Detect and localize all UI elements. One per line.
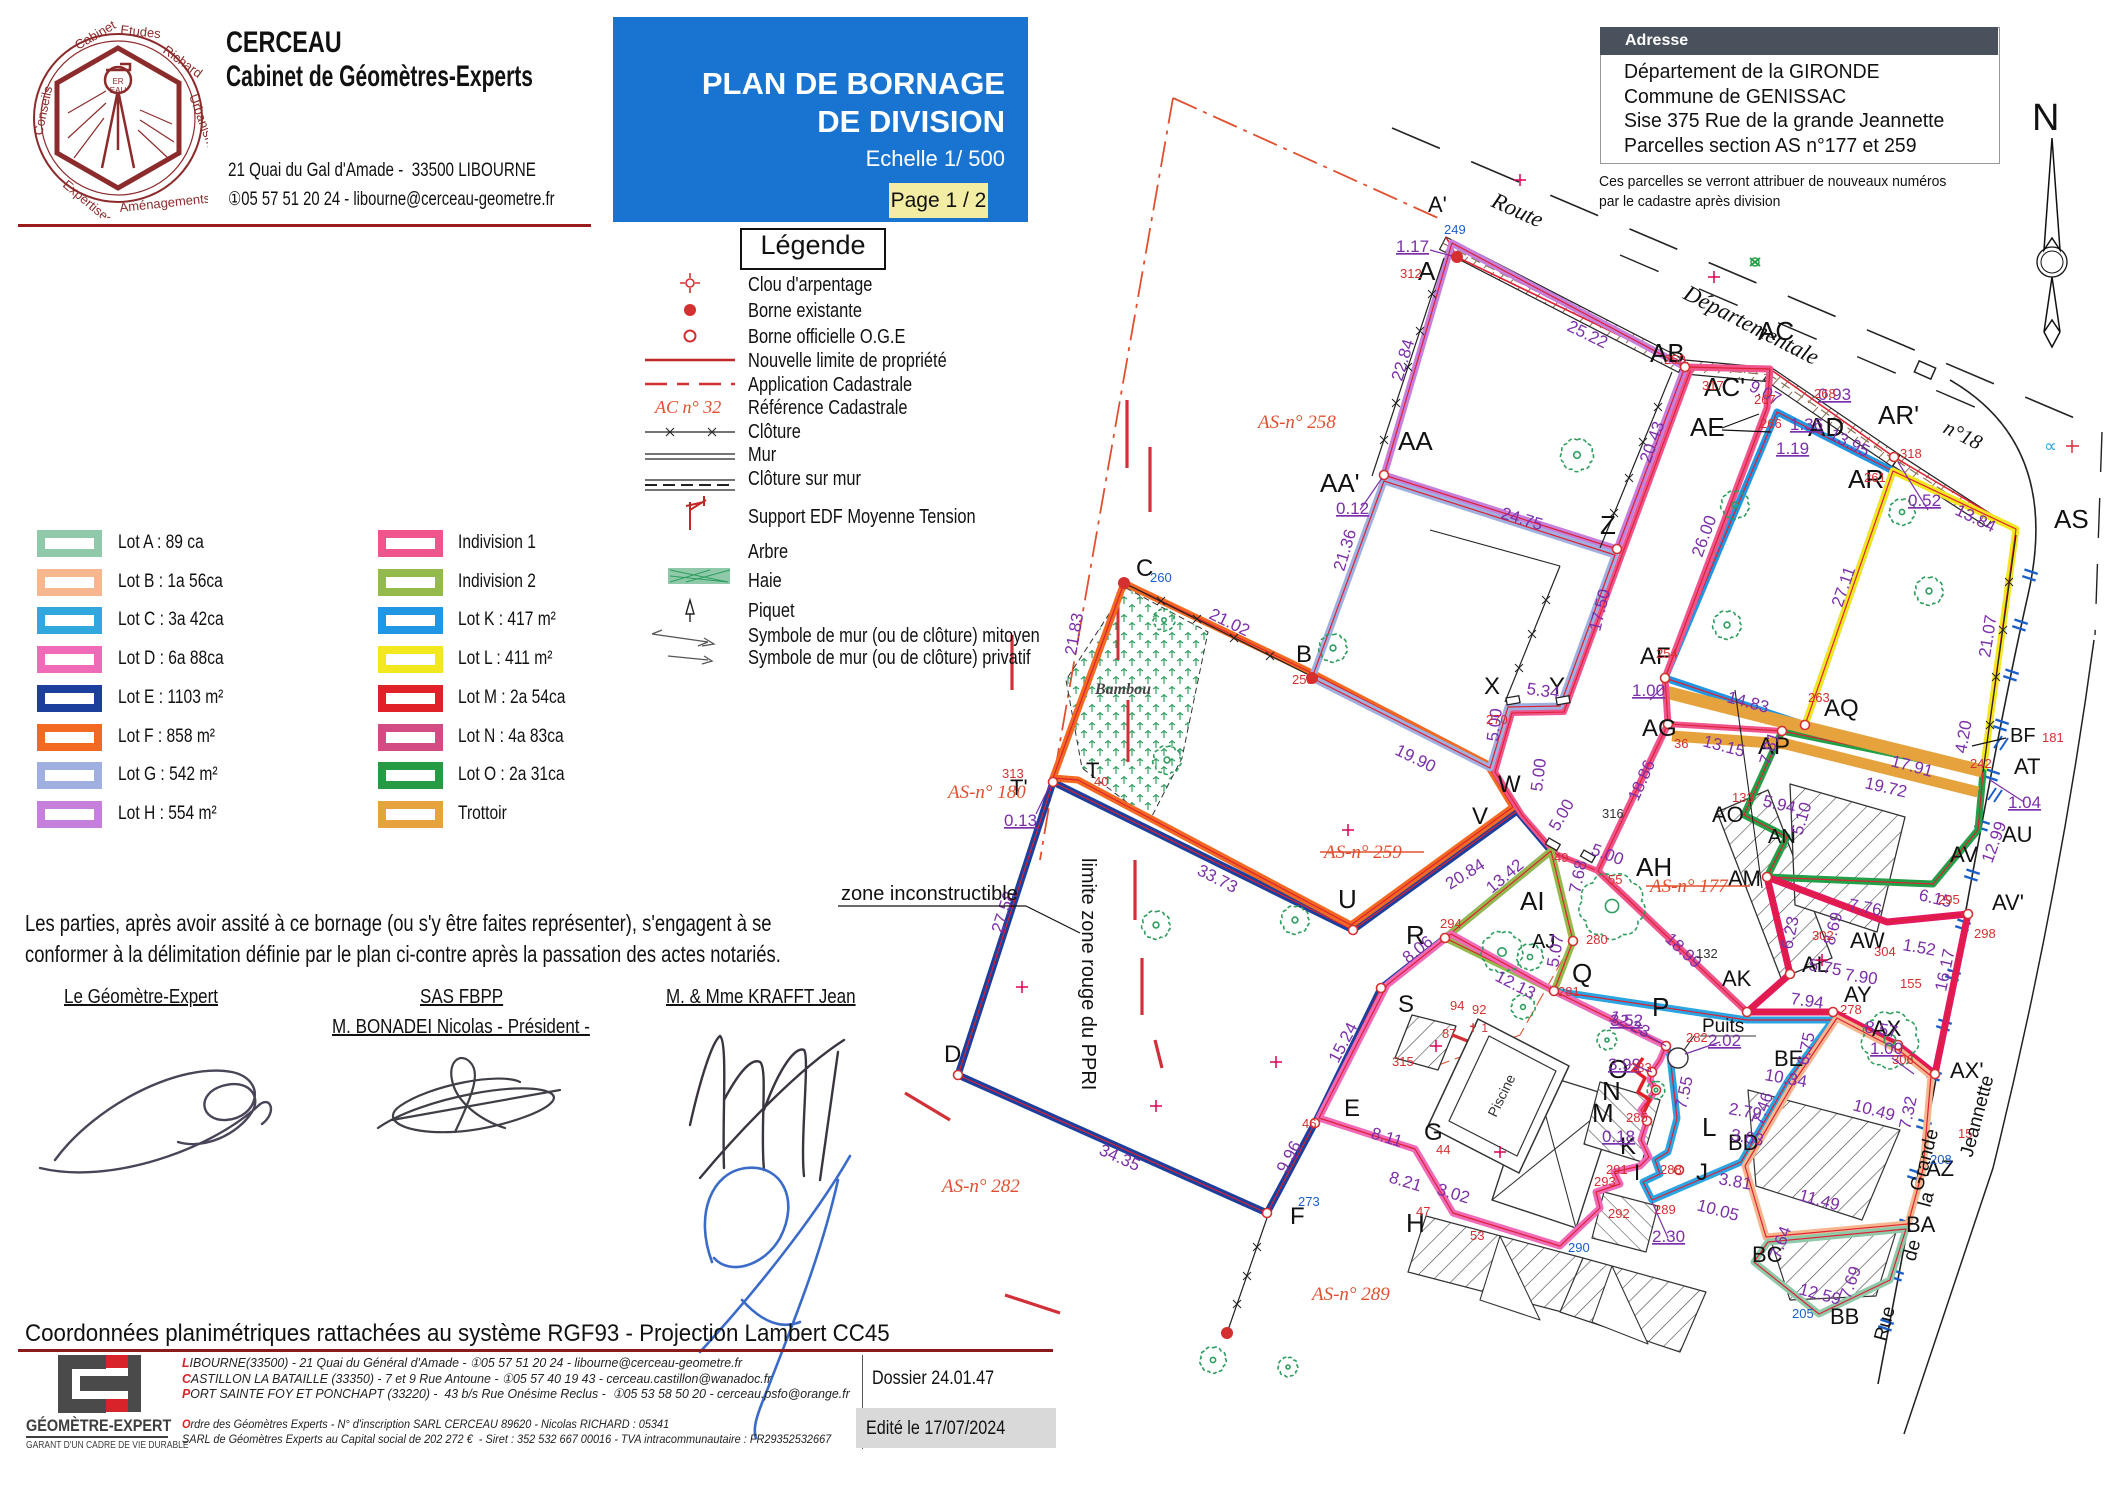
svg-text:312: 312 — [1400, 266, 1422, 281]
svg-text:5.00: 5.00 — [1589, 840, 1627, 869]
svg-text:1.04: 1.04 — [2008, 793, 2041, 812]
svg-text:294: 294 — [1440, 916, 1462, 931]
svg-text:3.52: 3.52 — [1610, 1011, 1643, 1030]
svg-text:261: 261 — [1864, 470, 1886, 485]
svg-text:94: 94 — [1450, 998, 1464, 1013]
svg-text:U: U — [1338, 884, 1357, 914]
svg-text:87: 87 — [1442, 1026, 1456, 1041]
svg-text:155: 155 — [1900, 976, 1922, 991]
svg-text:288: 288 — [1660, 1162, 1682, 1177]
svg-text:AS-n° 180: AS-n° 180 — [946, 782, 1026, 803]
svg-text:0.13: 0.13 — [1004, 811, 1037, 830]
svg-text:133: 133 — [1732, 790, 1754, 805]
svg-text:278: 278 — [1840, 1002, 1862, 1017]
svg-text:6.75: 6.75 — [1793, 1031, 1818, 1067]
svg-text:limite zone rouge du PPRI: limite zone rouge du PPRI — [1077, 858, 1099, 1090]
svg-text:298: 298 — [1974, 926, 1996, 941]
svg-text:181: 181 — [2042, 730, 2064, 745]
svg-text:250: 250 — [1664, 352, 1686, 367]
svg-text:55: 55 — [1608, 872, 1622, 887]
svg-text:316: 316 — [1602, 806, 1624, 821]
svg-text:✝ 1: ✝ 1 — [1468, 1021, 1488, 1035]
svg-text:W: W — [1498, 771, 1521, 798]
svg-text:n°18: n°18 — [1940, 415, 1987, 455]
svg-text:205: 205 — [1792, 1306, 1814, 1321]
svg-text:17.50: 17.50 — [1585, 587, 1614, 633]
svg-text:24.75: 24.75 — [1499, 504, 1545, 535]
svg-text:AG: AG — [1642, 715, 1677, 742]
svg-text:AS-n° 258: AS-n° 258 — [1256, 412, 1336, 433]
svg-text:2.02: 2.02 — [1708, 1031, 1741, 1050]
svg-text:AS: AS — [2054, 504, 2089, 534]
svg-text:46: 46 — [1302, 1116, 1316, 1131]
svg-text:AS-n° 289: AS-n° 289 — [1310, 1284, 1390, 1305]
svg-text:AE: AE — [1690, 412, 1725, 442]
svg-text:BF: BF — [2010, 725, 2036, 747]
svg-text:5.00: 5.00 — [1545, 796, 1578, 834]
svg-text:53: 53 — [1470, 1228, 1484, 1243]
svg-text:18.86: 18.86 — [1624, 757, 1659, 804]
svg-text:J: J — [1696, 1159, 1708, 1186]
svg-text:7.68: 7.68 — [1565, 859, 1590, 895]
svg-text:290: 290 — [1568, 1240, 1590, 1255]
svg-text:36: 36 — [1674, 736, 1688, 751]
svg-text:49: 49 — [1554, 850, 1568, 865]
svg-text:263: 263 — [1808, 690, 1830, 705]
svg-text:N: N — [2032, 97, 2059, 139]
svg-text:AK: AK — [1722, 966, 1752, 991]
svg-text:5.34: 5.34 — [1525, 679, 1560, 702]
svg-text:249: 249 — [1444, 222, 1466, 237]
svg-text:AA': AA' — [1320, 468, 1360, 498]
svg-text:0.52: 0.52 — [1908, 491, 1941, 510]
svg-text:268: 268 — [1814, 386, 1836, 401]
svg-text:267: 267 — [1754, 392, 1776, 407]
svg-text:P: P — [1652, 992, 1669, 1022]
svg-text:8.11: 8.11 — [1369, 1124, 1405, 1151]
svg-text:AR': AR' — [1878, 400, 1919, 430]
svg-text:BA: BA — [1906, 1212, 1936, 1237]
svg-text:AV': AV' — [1992, 890, 2024, 915]
svg-text:302: 302 — [1812, 928, 1834, 943]
svg-text:254: 254 — [1656, 646, 1678, 661]
svg-text:de: de — [1900, 1237, 1926, 1263]
svg-text:132: 132 — [1696, 946, 1718, 961]
svg-text:44: 44 — [1436, 1142, 1450, 1157]
svg-text:19.90: 19.90 — [1392, 741, 1439, 777]
svg-text:306: 306 — [1892, 1052, 1914, 1067]
svg-text:2.30: 2.30 — [1652, 1227, 1685, 1246]
svg-text:1.52: 1.52 — [1901, 935, 1937, 959]
svg-text:92: 92 — [1472, 1002, 1486, 1017]
svg-text:270: 270 — [1486, 712, 1508, 727]
svg-text:293: 293 — [1594, 1174, 1616, 1189]
svg-text:zone inconstructible: zone inconstructible — [841, 883, 1018, 905]
svg-text:280: 280 — [1586, 932, 1608, 947]
svg-text:Etudes: Etudes — [120, 22, 162, 41]
svg-text:AO: AO — [1712, 802, 1744, 827]
svg-text:AS-n° 282: AS-n° 282 — [940, 1176, 1020, 1197]
svg-text:47: 47 — [1416, 1204, 1430, 1219]
svg-text:253: 253 — [1292, 672, 1314, 687]
svg-text:Cabinet: Cabinet — [72, 18, 119, 53]
svg-text:ER: ER — [112, 77, 123, 86]
svg-text:8.21: 8.21 — [1387, 1168, 1424, 1196]
svg-text:Bambou: Bambou — [1094, 681, 1151, 698]
svg-text:L: L — [1702, 1112, 1716, 1142]
svg-text:AM: AM — [1728, 866, 1761, 891]
svg-text:EAU: EAU — [110, 86, 127, 95]
svg-text:I: I — [1634, 1160, 1640, 1185]
svg-text:21.83: 21.83 — [1061, 611, 1087, 656]
svg-text:AC n° 32: AC n° 32 — [654, 397, 721, 417]
svg-text:A': A' — [1428, 192, 1447, 217]
svg-text:315: 315 — [1392, 1054, 1414, 1069]
svg-text:3.02: 3.02 — [1435, 1180, 1472, 1208]
svg-text:1.36: 1.36 — [1790, 415, 1823, 434]
svg-text:∝: ∝ — [2044, 436, 2057, 456]
svg-text:285: 285 — [1626, 1110, 1648, 1125]
svg-text:313: 313 — [1002, 766, 1024, 781]
svg-text:AI: AI — [1520, 886, 1545, 916]
svg-text:266: 266 — [1760, 416, 1782, 431]
svg-text:282: 282 — [1686, 1030, 1708, 1045]
svg-text:317: 317 — [1702, 378, 1724, 393]
svg-text:1.17: 1.17 — [1396, 237, 1429, 256]
svg-text:M: M — [1592, 1098, 1614, 1128]
svg-text:295: 295 — [1938, 892, 1960, 907]
svg-text:40: 40 — [1094, 774, 1108, 789]
svg-text:273: 273 — [1298, 1194, 1320, 1209]
svg-text:5.00: 5.00 — [1527, 757, 1550, 792]
svg-text:242: 242 — [1970, 756, 1992, 771]
svg-text:Jeannette: Jeannette — [1957, 1073, 1999, 1159]
svg-text:1.19: 1.19 — [1776, 439, 1809, 458]
svg-text:S: S — [1398, 991, 1414, 1018]
svg-text:0.12: 0.12 — [1336, 499, 1369, 518]
svg-text:260: 260 — [1150, 570, 1172, 585]
svg-text:304: 304 — [1874, 944, 1896, 959]
svg-text:318: 318 — [1900, 446, 1922, 461]
svg-text:10.05: 10.05 — [1695, 1196, 1741, 1225]
svg-text:Z: Z — [1600, 510, 1616, 540]
svg-text:Rue: Rue — [1871, 1304, 1900, 1343]
svg-text:292: 292 — [1608, 1206, 1630, 1221]
svg-text:AA: AA — [1398, 426, 1433, 456]
svg-text:Route: Route — [1487, 187, 1547, 232]
svg-text:281: 281 — [1558, 984, 1580, 999]
svg-text:D: D — [944, 1041, 961, 1068]
svg-text:AV: AV — [1950, 842, 1978, 867]
svg-text:Départementale: Départementale — [1679, 280, 1823, 370]
svg-text:B: B — [1296, 641, 1312, 668]
svg-text:0.18: 0.18 — [1602, 1127, 1635, 1146]
svg-text:la: la — [1915, 1189, 1939, 1209]
svg-text:X: X — [1484, 673, 1500, 700]
svg-text:AT: AT — [2014, 754, 2040, 779]
svg-text:4.20: 4.20 — [1951, 719, 1975, 755]
svg-text:V: V — [1472, 803, 1488, 830]
svg-text:E: E — [1344, 1095, 1360, 1122]
